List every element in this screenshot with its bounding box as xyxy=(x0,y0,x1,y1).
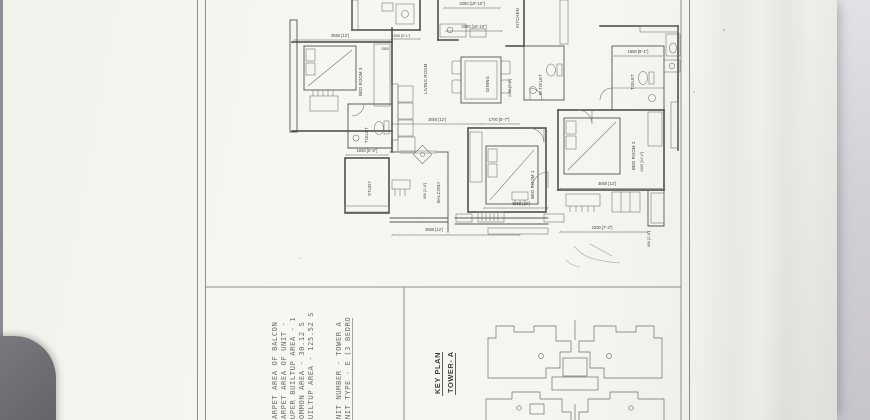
unit-floor-plan: BED ROOM 3 TOILET STUDY xyxy=(290,0,725,267)
dim-bedroom3-3650: 3650 [12'] xyxy=(331,33,349,38)
coffee-table xyxy=(413,145,431,163)
bedroom2-wardrobe xyxy=(648,112,662,146)
bottom-ledge xyxy=(455,212,548,234)
dim-balcony-3650: 3650 [12'] xyxy=(425,227,443,232)
dim-bedroom2-3650: 3650 [12'] xyxy=(598,181,616,186)
toilet-right-block xyxy=(600,26,680,150)
floor-plan-drawing: BED ROOM 3 TOILET STUDY xyxy=(0,0,870,420)
bedroom3-bed xyxy=(304,46,356,90)
wc-icon xyxy=(547,64,556,76)
room-label-toilet-right: TOILET xyxy=(630,74,635,90)
wc-icon xyxy=(639,72,648,85)
door-arc xyxy=(352,104,364,116)
room-label-balcony: BALCONY xyxy=(436,181,441,203)
wc-icon xyxy=(375,122,384,135)
dim-2200: 2200 [7'-3"] xyxy=(592,225,613,230)
room-label-kitchen: KITCHEN xyxy=(515,8,520,28)
dim-balcony-600: 600 [2'-0"] xyxy=(423,183,427,199)
key-plan-title: KEY PLAN xyxy=(433,352,442,394)
wc-icon xyxy=(670,43,677,53)
unit-type-line: UNIT TYPE - E (3 BEDRO xyxy=(343,317,352,420)
key-plan-subtitle: TOWER- A xyxy=(446,351,455,393)
door-arc xyxy=(600,88,612,100)
room-label-m-toilet: M.TOILET xyxy=(538,74,543,95)
bedroom1-wardrobe xyxy=(470,132,482,182)
dim-kitchen-3300-a: 3300 [10'-10"] xyxy=(459,1,484,6)
kitchen-walls xyxy=(438,0,524,46)
carpet-balcony-line: CARPET AREA OF BALCON xyxy=(270,322,279,420)
wall-hatch xyxy=(560,0,568,44)
common-area-line: COMMON AREA - 30.12 S xyxy=(297,322,306,420)
stairs xyxy=(651,193,664,223)
bedroom2-walls xyxy=(558,110,664,190)
paper-speck xyxy=(299,257,301,259)
bedroom2-dressers xyxy=(566,192,640,212)
room-label-living: LIVING ROOM xyxy=(423,63,428,94)
room-label-toilet-left: TOILET xyxy=(364,127,369,143)
basin-icon xyxy=(649,95,656,102)
basin-icon xyxy=(353,135,359,141)
room-label-bedroom2: BED ROOM 2 xyxy=(631,141,636,170)
dim-dining-2250: 2250 [7'-5"] xyxy=(508,79,512,97)
bedroom2-bed xyxy=(564,118,620,174)
builtup-area-line: BUILTUP AREA - 125.52 S xyxy=(306,312,315,420)
sofa xyxy=(392,84,415,152)
sink-icon xyxy=(447,27,453,33)
photo-of-floor-plan-document: BED ROOM 3 TOILET STUDY xyxy=(0,0,870,420)
dim-1500: 1500 xyxy=(381,47,389,51)
title-block: UNIT TYPE - E (3 BEDRO UNIT NUMBER - TOW… xyxy=(270,312,456,420)
dining-set xyxy=(452,57,510,103)
room-label-study: STUDY xyxy=(367,181,372,196)
bedroom3-wardrobe xyxy=(374,44,390,106)
unit-number-line: UNIT NUMBER - TOWER A xyxy=(334,321,343,420)
m-toilet xyxy=(524,46,564,100)
room-label-bedroom3: BED ROOM 3 xyxy=(358,67,363,96)
key-plan-drawing xyxy=(486,320,664,420)
super-builtup-line: SUPER BUILTUP AREA - 1 xyxy=(288,317,297,420)
dim-toilet-1850: 1850 [6'-1"] xyxy=(628,49,649,54)
dim-bedroom1-3050: 3050 [10'] xyxy=(512,201,530,206)
basin-icon xyxy=(530,87,537,94)
door-arc xyxy=(578,110,592,124)
bedroom3-dresser xyxy=(310,90,338,111)
dim-living-3650: 3650 [12'] xyxy=(428,117,446,122)
carpet-unit-line: CARPET AREA OF UNIT - xyxy=(279,322,288,420)
pencil-marks xyxy=(566,244,620,267)
utility-top-left xyxy=(352,0,420,30)
dim-kitchen-3300-b: 3300 [10'-10"] xyxy=(461,24,486,29)
door-arc xyxy=(529,128,544,143)
toilet-left xyxy=(348,104,392,148)
dim-right-600: 600 [2'-0"] xyxy=(647,231,651,247)
dim-1700: 1700 [5'-7"] xyxy=(489,117,510,122)
room-label-dining: DINING xyxy=(485,76,490,92)
ac-unit xyxy=(478,212,504,222)
bedroom2-step-walls xyxy=(648,190,664,226)
dim-1550: 1550 [5'-1"] xyxy=(392,34,410,38)
dim-study-1650: 1650 [5'-5"] xyxy=(357,148,378,153)
dim-bedroom2-4300: 4300 [14'-1"] xyxy=(640,152,644,172)
paper-speck xyxy=(723,29,725,31)
paper-speck xyxy=(693,91,695,93)
